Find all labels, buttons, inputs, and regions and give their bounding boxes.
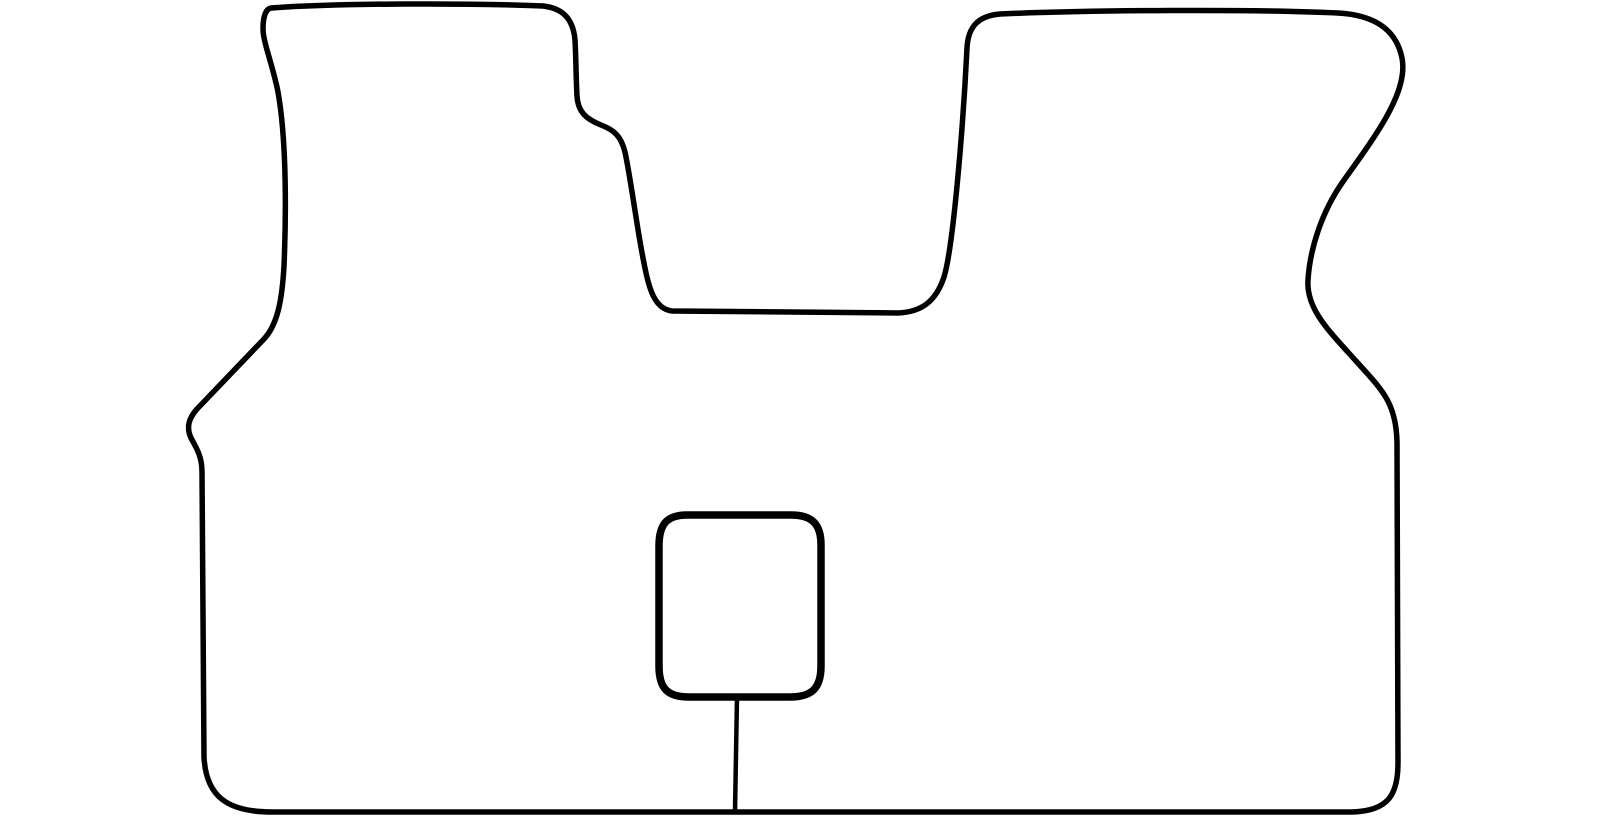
floor-mat-template-figure bbox=[0, 0, 1600, 825]
line-drawing-canvas bbox=[0, 0, 1600, 825]
cutout-square-path bbox=[659, 515, 821, 697]
mat-outline-path bbox=[189, 4, 1403, 812]
connector-line-path bbox=[735, 697, 737, 812]
